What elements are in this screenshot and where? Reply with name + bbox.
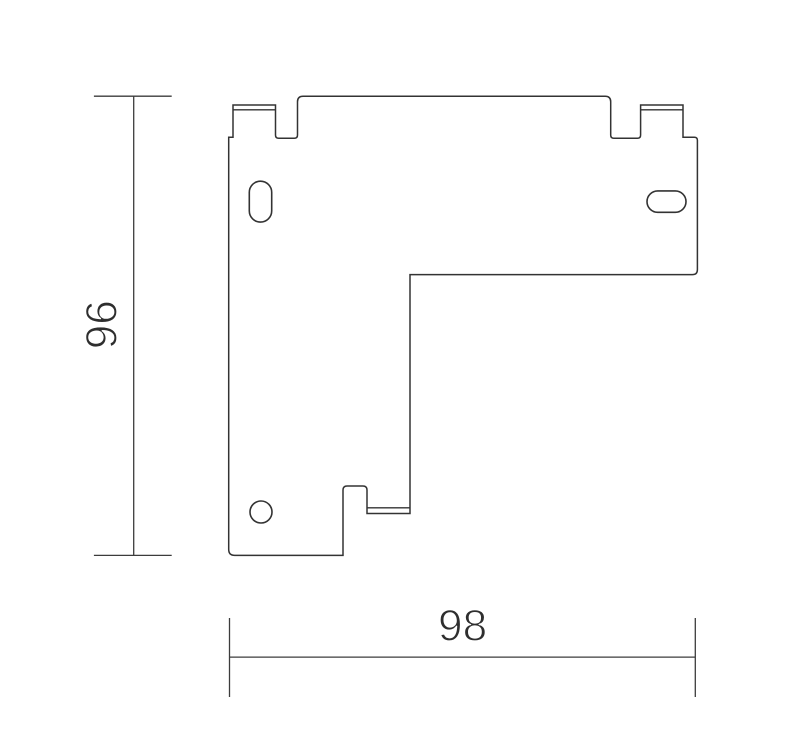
svg-text:96: 96	[77, 300, 126, 349]
svg-text:98: 98	[438, 601, 487, 650]
